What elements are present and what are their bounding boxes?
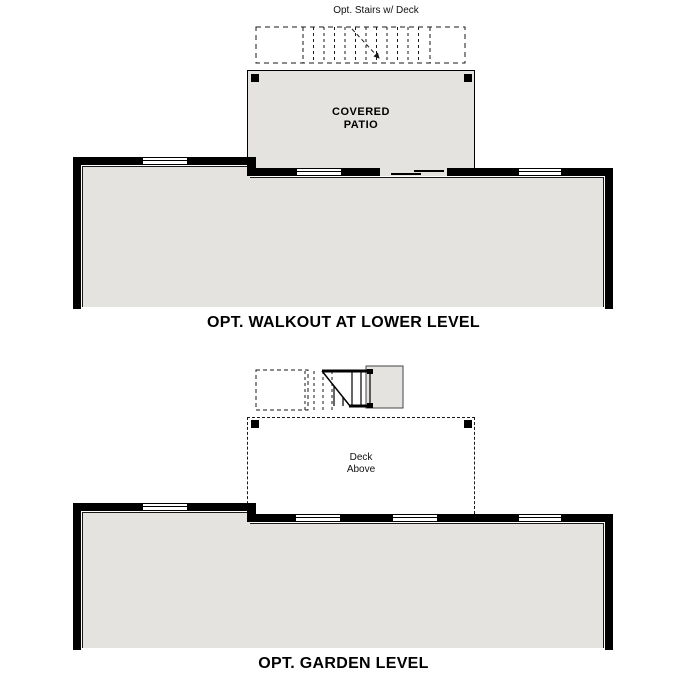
floor-area <box>82 512 250 648</box>
window <box>296 168 342 176</box>
patio-post <box>251 74 259 82</box>
stairs-label: Opt. Stairs w/ Deck <box>316 5 436 17</box>
window <box>295 514 341 522</box>
wall-segment <box>253 168 296 176</box>
sliding-door-line <box>391 173 421 175</box>
deck-post <box>464 420 472 428</box>
patio-label-line2: PATIO <box>261 119 461 132</box>
plan-title-garden: OPT. GARDEN LEVEL <box>0 655 687 673</box>
wall-segment <box>253 514 295 522</box>
plan-title-walkout: OPT. WALKOUT AT LOWER LEVEL <box>0 314 687 332</box>
wall-left <box>73 157 81 309</box>
window <box>142 157 188 165</box>
wall-segment <box>562 168 605 176</box>
deck-label-line2: Above <box>261 464 461 476</box>
wall-left <box>73 503 81 650</box>
optional-stairs-drawing <box>250 20 470 68</box>
window <box>392 514 438 522</box>
floor-area <box>250 177 604 307</box>
wall-segment <box>341 514 392 522</box>
wall-right <box>605 168 613 309</box>
floor-area <box>82 166 250 307</box>
floorplan-sheet: Opt. Stairs w/ Deck <box>0 0 687 687</box>
wall-right <box>605 514 613 650</box>
stairs-drawing <box>250 358 470 416</box>
window <box>518 514 562 522</box>
sliding-door-line <box>414 170 444 172</box>
floor-area <box>250 523 604 648</box>
wall-segment <box>438 514 518 522</box>
deck-label: Deck Above <box>261 452 461 476</box>
window <box>518 168 562 176</box>
window <box>142 503 188 511</box>
deck-label-line1: Deck <box>261 452 461 464</box>
deck-post <box>251 420 259 428</box>
wall-segment <box>562 514 605 522</box>
patio-post <box>464 74 472 82</box>
wall-segment <box>342 168 380 176</box>
patio-label-line1: COVERED <box>261 106 461 119</box>
patio-label: COVERED PATIO <box>261 106 461 132</box>
wall-segment <box>447 168 518 176</box>
